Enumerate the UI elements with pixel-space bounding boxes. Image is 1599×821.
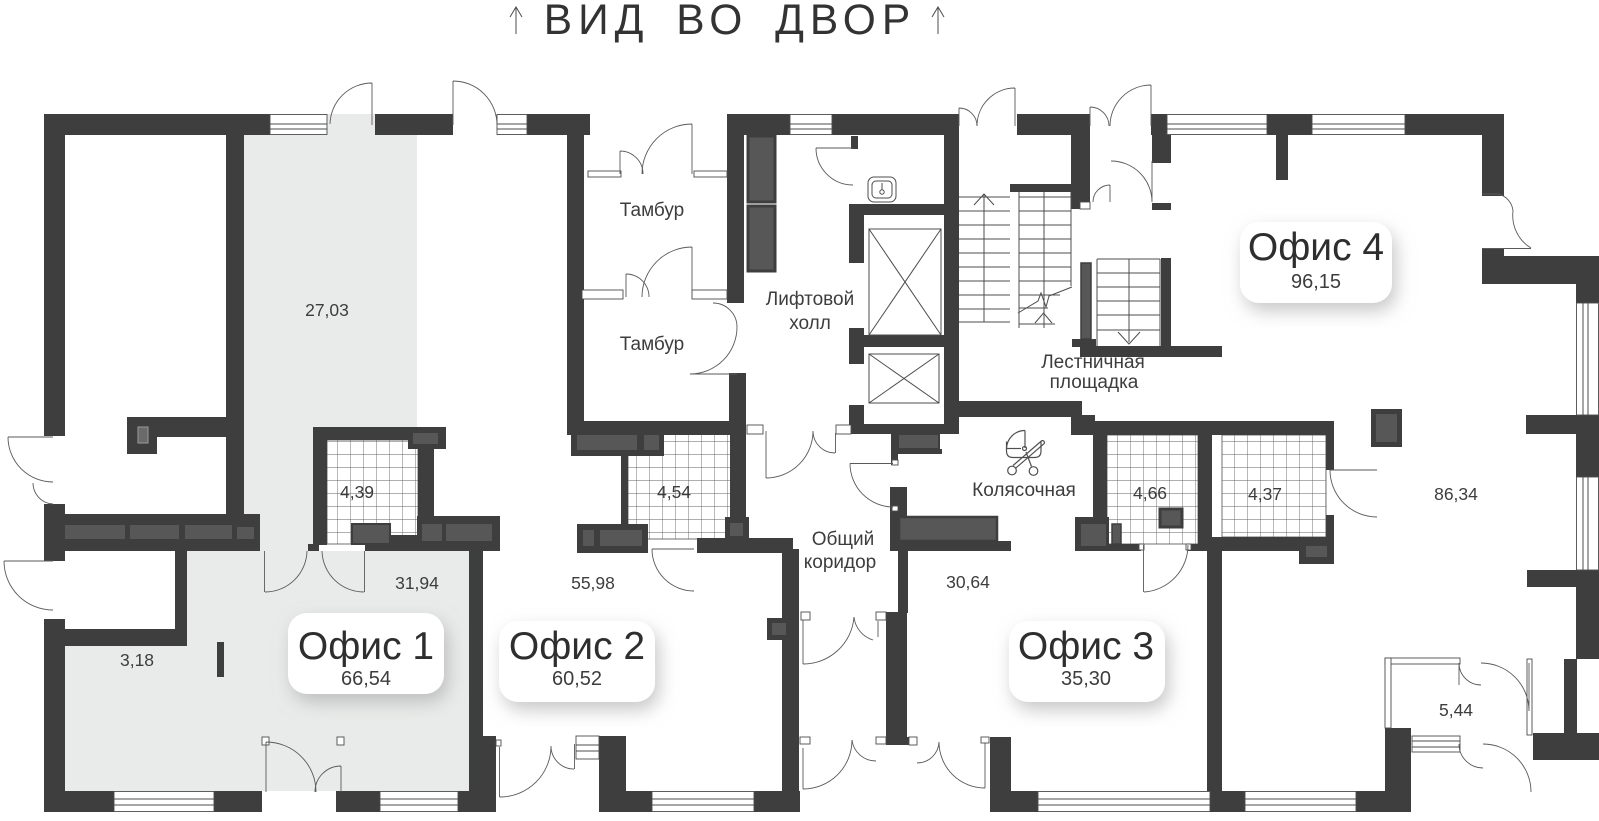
svg-text:Колясочная: Колясочная xyxy=(972,480,1076,501)
svg-text:96,15: 96,15 xyxy=(1291,271,1341,293)
svg-text:66,54: 66,54 xyxy=(341,668,391,690)
svg-text:Лифтовой: Лифтовой xyxy=(766,289,854,310)
svg-text:4,54: 4,54 xyxy=(657,482,691,502)
svg-text:30,64: 30,64 xyxy=(946,572,990,592)
svg-text:55,98: 55,98 xyxy=(571,573,615,593)
svg-text:Тамбур: Тамбур xyxy=(620,200,685,221)
svg-text:холл: холл xyxy=(789,313,831,334)
svg-text:Офис 3: Офис 3 xyxy=(1018,625,1154,668)
svg-text:Тамбур: Тамбур xyxy=(620,334,685,355)
svg-text:31,94: 31,94 xyxy=(395,573,439,593)
svg-text:35,30: 35,30 xyxy=(1061,668,1111,690)
svg-text:3,18: 3,18 xyxy=(120,650,154,670)
svg-text:86,34: 86,34 xyxy=(1434,484,1478,504)
svg-text:4,39: 4,39 xyxy=(340,482,374,502)
svg-text:Офис 1: Офис 1 xyxy=(298,625,434,668)
svg-text:60,52: 60,52 xyxy=(552,668,602,690)
svg-text:5,44: 5,44 xyxy=(1439,700,1473,720)
svg-text:Лестничная: Лестничная xyxy=(1041,352,1145,373)
svg-text:27,03: 27,03 xyxy=(305,300,349,320)
svg-text:ВИД ВО ДВОР: ВИД ВО ДВОР xyxy=(544,0,916,44)
svg-text:Офис 4: Офис 4 xyxy=(1248,226,1384,269)
svg-text:Общий: Общий xyxy=(812,529,875,550)
svg-text:Офис 2: Офис 2 xyxy=(509,625,645,668)
svg-text:коридор: коридор xyxy=(804,552,877,573)
svg-text:4,37: 4,37 xyxy=(1248,484,1282,504)
svg-text:4,66: 4,66 xyxy=(1133,483,1167,503)
svg-text:площадка: площадка xyxy=(1050,372,1139,393)
